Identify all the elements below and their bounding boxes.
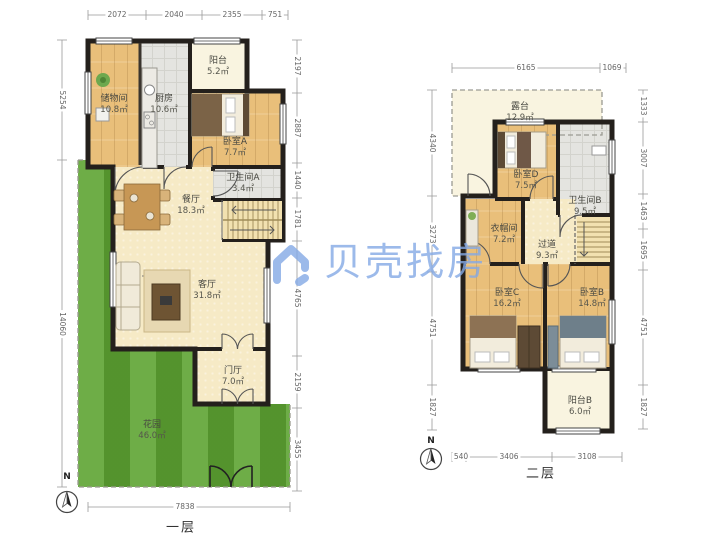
dim-f2-right-0: 1333	[639, 94, 647, 117]
dim-f1-right-6: 3455	[293, 437, 301, 460]
label-bedroom-b: 卧室B14.8㎡	[578, 288, 605, 310]
dim-f2-right-2: 1463	[639, 199, 647, 222]
label-bath-a: 卫生间A3.4㎡	[226, 173, 259, 195]
dim-f2-top-1: 1069	[600, 64, 623, 72]
room-terrace-column	[452, 135, 495, 196]
dim-f2-bottom-0: 540	[452, 453, 470, 461]
dim-f2-right-5: 1827	[639, 395, 647, 418]
label-balcony-b: 阳台B6.0㎡	[568, 396, 592, 418]
floorplan-page: 贝壳找房 阳台5.2㎡ 储物间10.8㎡ 厨房10.6㎡ 卧室A7.7㎡ 卫生间…	[0, 0, 720, 540]
room-stairwell2-floor	[575, 215, 612, 264]
label-bedroom-d: 卧室D7.5㎡	[514, 170, 539, 192]
dim-f1-right-2: 1440	[293, 168, 301, 191]
dim-f2-top-0: 6165	[514, 64, 537, 72]
dim-f1-left-1: 14060	[58, 310, 66, 338]
floor2-title: 二层	[526, 463, 556, 482]
room-garden-bottom	[78, 404, 290, 487]
dim-f2-right-1: 3007	[639, 146, 647, 169]
dim-f2-left-1: 3273	[428, 222, 436, 245]
dim-f1-top-2: 2355	[220, 11, 243, 19]
dim-f1-top-0: 2072	[105, 11, 128, 19]
dim-f1-right-3: 1781	[293, 207, 301, 230]
label-garden: 花园46.0㎡	[138, 420, 165, 442]
dim-f1-right-5: 2159	[293, 370, 301, 393]
label-balcony: 阳台5.2㎡	[207, 56, 229, 78]
room-bedroom-b-floor	[545, 264, 612, 369]
dim-f1-top-3: 751	[266, 11, 284, 19]
label-terrace: 露台12.9㎡	[506, 102, 533, 124]
label-bedroom-c: 卧室C16.2㎡	[493, 288, 520, 310]
label-hallway: 过道9.3㎡	[536, 240, 558, 262]
dim-f2-bottom-1: 3406	[497, 453, 520, 461]
compass-floor1	[57, 491, 78, 513]
label-dining: 餐厅18.3㎡	[177, 195, 204, 217]
label-foyer: 门厅7.0㎡	[222, 366, 244, 388]
label-storage: 储物间10.8㎡	[100, 94, 127, 116]
dim-f2-right-4: 4751	[639, 315, 647, 338]
room-bedroom-c-floor	[463, 264, 545, 369]
dim-f2-right-3: 1695	[639, 238, 647, 261]
room-stairwell1-floor	[222, 200, 283, 240]
dim-f1-right-4: 4765	[293, 286, 301, 309]
dim-f1-top-1: 2040	[162, 11, 185, 19]
compass-floor2	[421, 448, 442, 470]
dim-f1-left-0: 5254	[58, 88, 66, 111]
dim-f1-bottom-0: 7838	[173, 503, 196, 511]
label-cloakroom: 衣帽间7.2㎡	[490, 224, 517, 246]
dim-f2-left-0: 4340	[428, 131, 436, 154]
dim-f2-left-2: 4751	[428, 316, 436, 339]
dim-f1-right-0: 2197	[293, 54, 301, 77]
beike-house-logo-icon	[266, 238, 316, 286]
north-label-floor2: N	[427, 436, 435, 446]
dim-f2-bottom-2: 3108	[575, 453, 598, 461]
floor1-title: 一层	[166, 517, 196, 536]
dim-f1-right-1: 2887	[293, 116, 301, 139]
label-living: 客厅31.8㎡	[193, 280, 220, 302]
north-label-floor1: N	[63, 472, 71, 482]
watermark: 贝壳找房	[266, 238, 488, 286]
dim-f2-left-3: 1827	[428, 395, 436, 418]
label-kitchen: 厨房10.6㎡	[150, 94, 177, 116]
label-bath-b: 卫生间B9.5㎡	[568, 196, 601, 218]
label-bedroom-a: 卧室A7.7㎡	[223, 137, 247, 159]
